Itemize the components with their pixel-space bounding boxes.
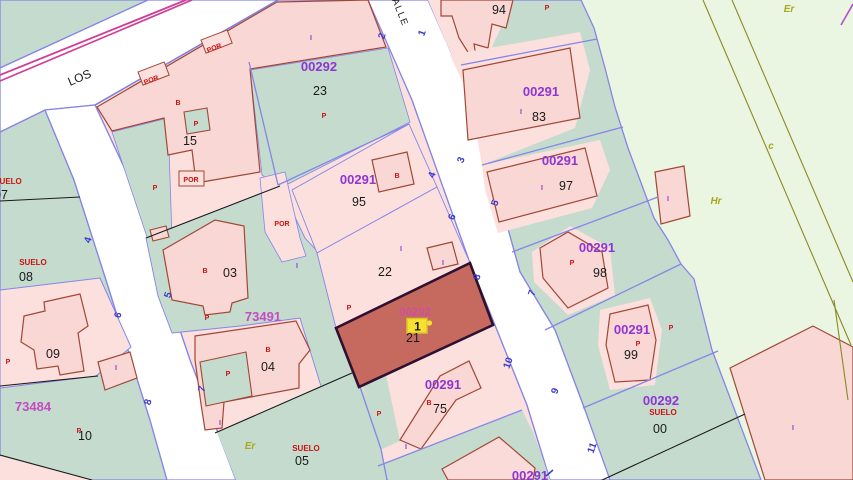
svg-text:00292: 00292 [399,307,431,319]
svg-text:P: P [153,185,158,192]
svg-text:75: 75 [433,402,447,416]
svg-text:00291: 00291 [614,322,650,337]
svg-text:95: 95 [352,195,366,209]
svg-text:P: P [322,113,327,120]
svg-text:03: 03 [223,266,237,280]
svg-text:I: I [520,109,522,116]
svg-text:97: 97 [559,179,573,193]
svg-text:P: P [77,428,82,435]
svg-text:Er: Er [784,4,796,15]
svg-text:21: 21 [406,331,420,345]
svg-text:SUELO: SUELO [649,408,677,417]
svg-text:15: 15 [183,134,197,148]
svg-text:B: B [202,268,207,275]
svg-text:73491: 73491 [245,309,281,324]
svg-text:08: 08 [19,270,33,284]
svg-text:00291: 00291 [579,240,615,255]
svg-text:00292: 00292 [301,59,337,74]
svg-text:SUELO: SUELO [19,258,47,267]
svg-text:I: I [541,185,543,192]
svg-text:07: 07 [0,188,8,202]
svg-text:P: P [570,260,575,267]
svg-text:00291: 00291 [542,153,578,168]
svg-text:I: I [296,263,298,270]
svg-text:00291: 00291 [340,172,376,187]
svg-text:P: P [205,315,210,322]
svg-text:P: P [226,371,231,378]
svg-text:94: 94 [492,3,506,17]
svg-text:P: P [636,341,641,348]
svg-text:I: I [310,35,312,42]
svg-text:I: I [219,420,221,427]
svg-text:00292: 00292 [643,393,679,408]
svg-text:83: 83 [532,110,546,124]
svg-text:P: P [194,121,199,128]
svg-text:SUELO: SUELO [292,444,320,453]
svg-text:00291: 00291 [523,84,559,99]
svg-text:P: P [545,5,550,12]
svg-text:I: I [405,444,407,451]
svg-text:73484: 73484 [15,399,52,414]
svg-text:B: B [394,173,399,180]
svg-text:B: B [265,347,270,354]
svg-text:I: I [667,196,669,203]
svg-text:P: P [6,359,11,366]
svg-text:B: B [175,100,180,107]
svg-text:I: I [792,425,794,432]
svg-text:99: 99 [624,348,638,362]
svg-text:POR: POR [274,221,289,228]
svg-text:I: I [400,246,402,253]
svg-text:22: 22 [378,265,392,279]
svg-text:POR: POR [183,177,198,184]
svg-text:P: P [669,325,674,332]
svg-text:P: P [347,305,352,312]
svg-text:00: 00 [653,422,667,436]
svg-text:Hr: Hr [710,196,722,207]
svg-text:00291: 00291 [512,468,548,480]
svg-text:98: 98 [593,266,607,280]
svg-text:I: I [442,260,444,267]
svg-text:23: 23 [313,84,327,98]
svg-text:09: 09 [46,347,60,361]
svg-text:SUELO: SUELO [0,177,22,186]
svg-text:04: 04 [261,360,275,374]
svg-text:00291: 00291 [425,377,461,392]
svg-text:c: c [768,141,774,152]
svg-text:05: 05 [295,454,309,468]
svg-text:Er: Er [245,441,257,452]
svg-text:B: B [426,400,431,407]
svg-text:I: I [115,365,117,372]
svg-text:P: P [377,411,382,418]
